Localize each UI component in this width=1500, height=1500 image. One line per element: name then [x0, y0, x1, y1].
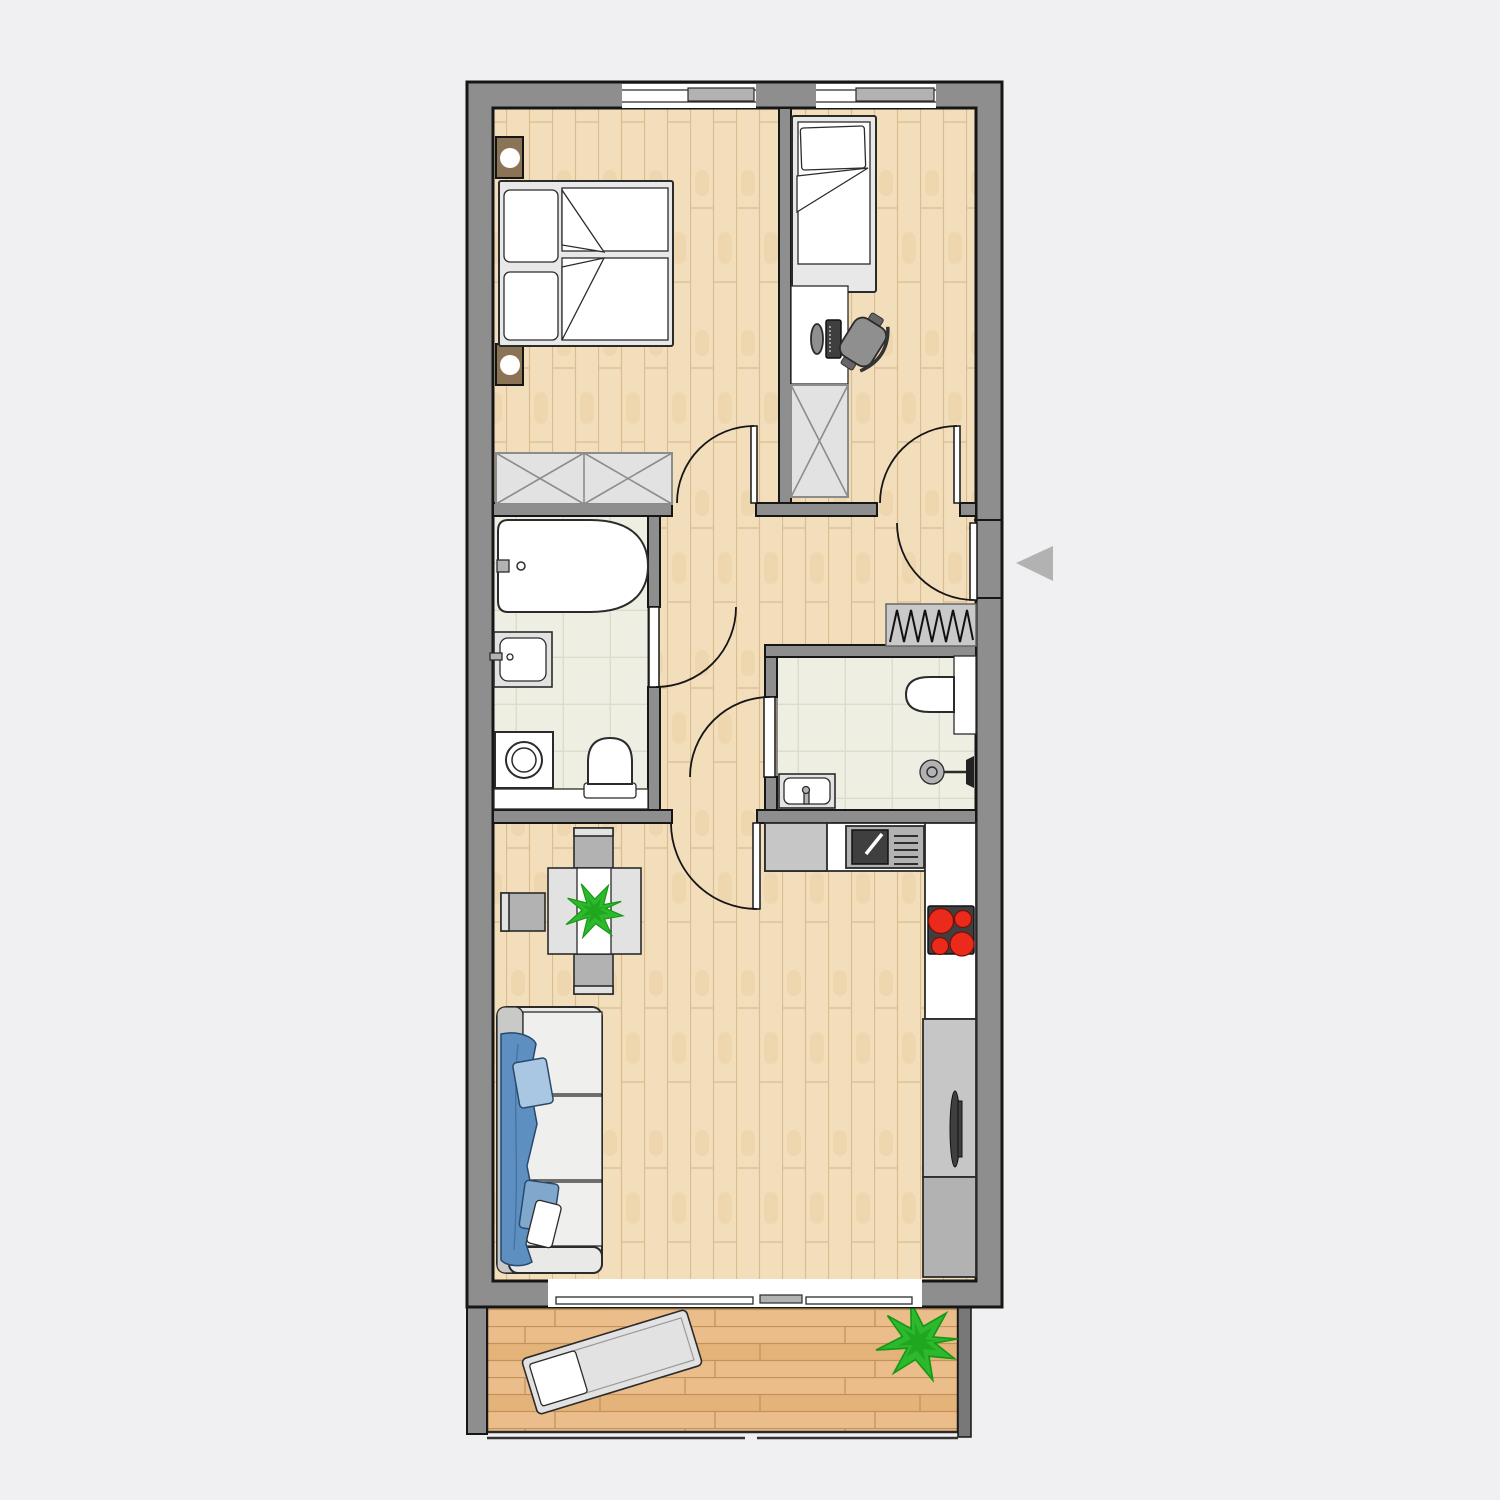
fridge-handle-bar: [958, 1101, 962, 1157]
door-leaf: [970, 523, 977, 600]
kitchen-cabinet-bottom: [923, 1177, 976, 1277]
door-leaf: [753, 823, 760, 909]
sliding-panel-2: [760, 1295, 802, 1303]
shower-valve-icon: [966, 756, 974, 788]
wc-sink-drain-icon: [803, 787, 810, 794]
bathtub-body: [498, 520, 648, 612]
wall-wc-living: [757, 810, 976, 823]
radiator: [886, 604, 976, 646]
bathroom-sink: [490, 632, 552, 687]
sink-faucet-icon: [490, 653, 502, 660]
computer-monitor-icon: [826, 320, 841, 358]
floor-plan-svg: Top-down architectural floor plan of a t…: [0, 0, 1500, 1500]
chair-back: [574, 828, 613, 836]
dining-chair-left: [501, 893, 545, 931]
balcony: [467, 1296, 971, 1438]
bathtub-faucet-icon: [497, 560, 509, 572]
pillow-bottom: [504, 272, 558, 340]
wall-bedroom-partition: [779, 108, 791, 503]
double-bed: [499, 181, 673, 346]
pillow-top: [504, 190, 558, 262]
wc-sink: [779, 774, 835, 808]
burner-3: [932, 938, 949, 955]
window-living-sliding-door: [548, 1279, 922, 1307]
fridge-tall-cabinet: [923, 1019, 976, 1177]
balcony-left-wall: [467, 1307, 487, 1434]
window-bedroom-1: [622, 84, 756, 108]
chair-back: [501, 893, 509, 931]
wc-toilet-bowl: [906, 677, 954, 712]
wardrobe-bedroom-2: [791, 385, 848, 497]
door-leaf: [764, 697, 775, 777]
door-leaf: [649, 607, 659, 687]
dining-chair-top: [574, 828, 613, 868]
wc-cistern: [954, 656, 976, 734]
bathroom-toilet: [584, 738, 636, 798]
balcony-right-wall: [958, 1307, 971, 1437]
floor-plan-page: Top-down architectural floor plan of a t…: [0, 0, 1500, 1500]
kitchen-sink: [846, 826, 924, 868]
desk-speaker: [811, 324, 823, 354]
chair-back: [574, 986, 613, 994]
desk-with-computer: [791, 286, 848, 384]
wall-bathroom-living: [493, 810, 672, 823]
burner-1: [929, 909, 954, 934]
burner-2: [955, 911, 972, 928]
bathtub: [497, 520, 648, 612]
toilet-tank: [584, 783, 636, 798]
window-bedroom-2: [816, 84, 936, 108]
washing-machine-body: [495, 732, 553, 788]
nightstand-lamp-top-icon: [500, 148, 520, 168]
toilet-bowl: [588, 738, 632, 784]
door-leaf: [751, 426, 757, 503]
burner-4: [950, 932, 974, 956]
kitchen-cabinet-left: [765, 823, 827, 871]
door-leaf: [954, 426, 960, 503]
sliding-panel-1: [556, 1297, 753, 1304]
wardrobe-bedroom-1: [496, 453, 672, 504]
sink-basin: [500, 638, 546, 681]
window-sash: [688, 88, 754, 101]
sofa: [497, 1007, 602, 1273]
pillow: [800, 126, 865, 170]
wall-bathroom-right-lower: [648, 687, 660, 810]
dining-chair-bottom: [574, 954, 613, 994]
shower-head-icon: [920, 760, 944, 784]
wall-bedroom2-right: [960, 503, 976, 516]
fridge-body: [923, 1019, 976, 1177]
wall-between-doors: [756, 503, 877, 516]
nightstand-lamp-bottom-icon: [500, 355, 520, 375]
window-sash: [856, 88, 934, 101]
wall-bathroom-right-upper: [648, 516, 660, 607]
wall-wc-left-upper: [765, 657, 777, 697]
single-bed: [792, 116, 876, 292]
wall-wc-left-lower: [765, 777, 777, 810]
wall-wc-top: [765, 645, 976, 657]
cooktop: [928, 906, 974, 956]
dining-table: [548, 868, 641, 954]
washing-machine: [495, 732, 553, 788]
sliding-panel-3: [806, 1297, 912, 1304]
sofa-pillow-top: [512, 1057, 553, 1108]
